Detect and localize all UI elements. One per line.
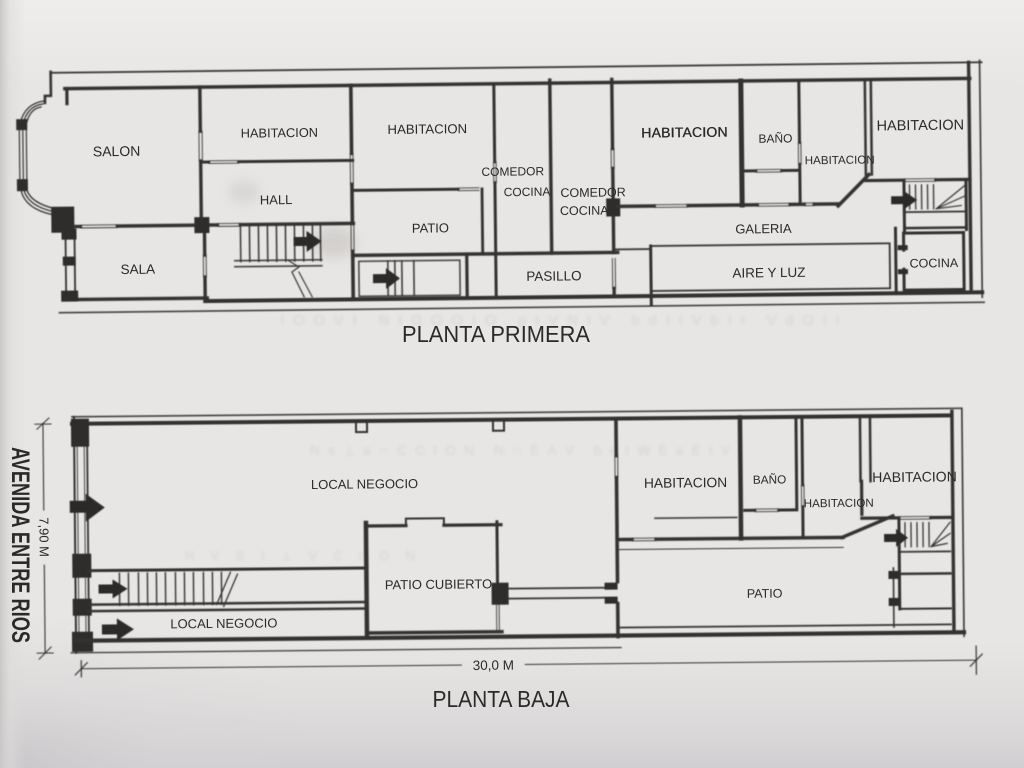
svg-text:SALA: SALA [121,262,156,277]
svg-text:BAÑO: BAÑO [753,472,787,486]
svg-text:AVENIDA ENTRE RIOS: AVENIDA ENTRE RIOS [6,447,34,643]
svg-text:COMEDOR: COMEDOR [560,185,625,200]
svg-text:HABITACION: HABITACION [241,125,318,141]
svg-text:LOCAL NEGOCIO: LOCAL NEGOCIO [170,615,277,631]
svg-text:BAÑO: BAÑO [758,131,792,145]
svg-text:COCINA: COCINA [504,185,551,200]
svg-text:PLANTA BAJA: PLANTA BAJA [433,686,571,712]
svg-text:PASILLO: PASILLO [526,268,581,284]
svg-text:PATIO: PATIO [747,587,783,601]
svg-text:COCINA: COCINA [909,256,958,271]
svg-text:GALERIA: GALERIA [735,221,792,237]
svg-text:HABITACION: HABITACION [641,124,728,141]
svg-text:PLANTA PRIMERA: PLANTA PRIMERA [402,321,591,347]
svg-text:PATIO CUBIERTO: PATIO CUBIERTO [385,576,493,592]
svg-text:LOCAL NEGOCIO: LOCAL NEGOCIO [311,476,418,492]
svg-text:AIRE Y LUZ: AIRE Y LUZ [732,265,805,281]
svg-text:30,0 M: 30,0 M [473,658,514,673]
svg-text:HABITACION: HABITACION [805,153,875,167]
svg-text:HALL: HALL [260,192,293,207]
svg-text:COCINA: COCINA [560,203,609,218]
svg-text:HABITACION: HABITACION [644,475,727,491]
svg-text:HABITACION: HABITACION [387,121,467,137]
svg-text:HABITACION: HABITACION [876,117,964,134]
svg-text:HABITACION: HABITACION [804,497,874,511]
svg-text:COMEDOR: COMEDOR [481,164,544,179]
svg-text:HABITACION: HABITACION [872,468,957,485]
svg-text:7,90 M: 7,90 M [36,517,51,557]
svg-text:PATIO: PATIO [412,220,449,235]
svg-text:SALON: SALON [93,143,141,160]
